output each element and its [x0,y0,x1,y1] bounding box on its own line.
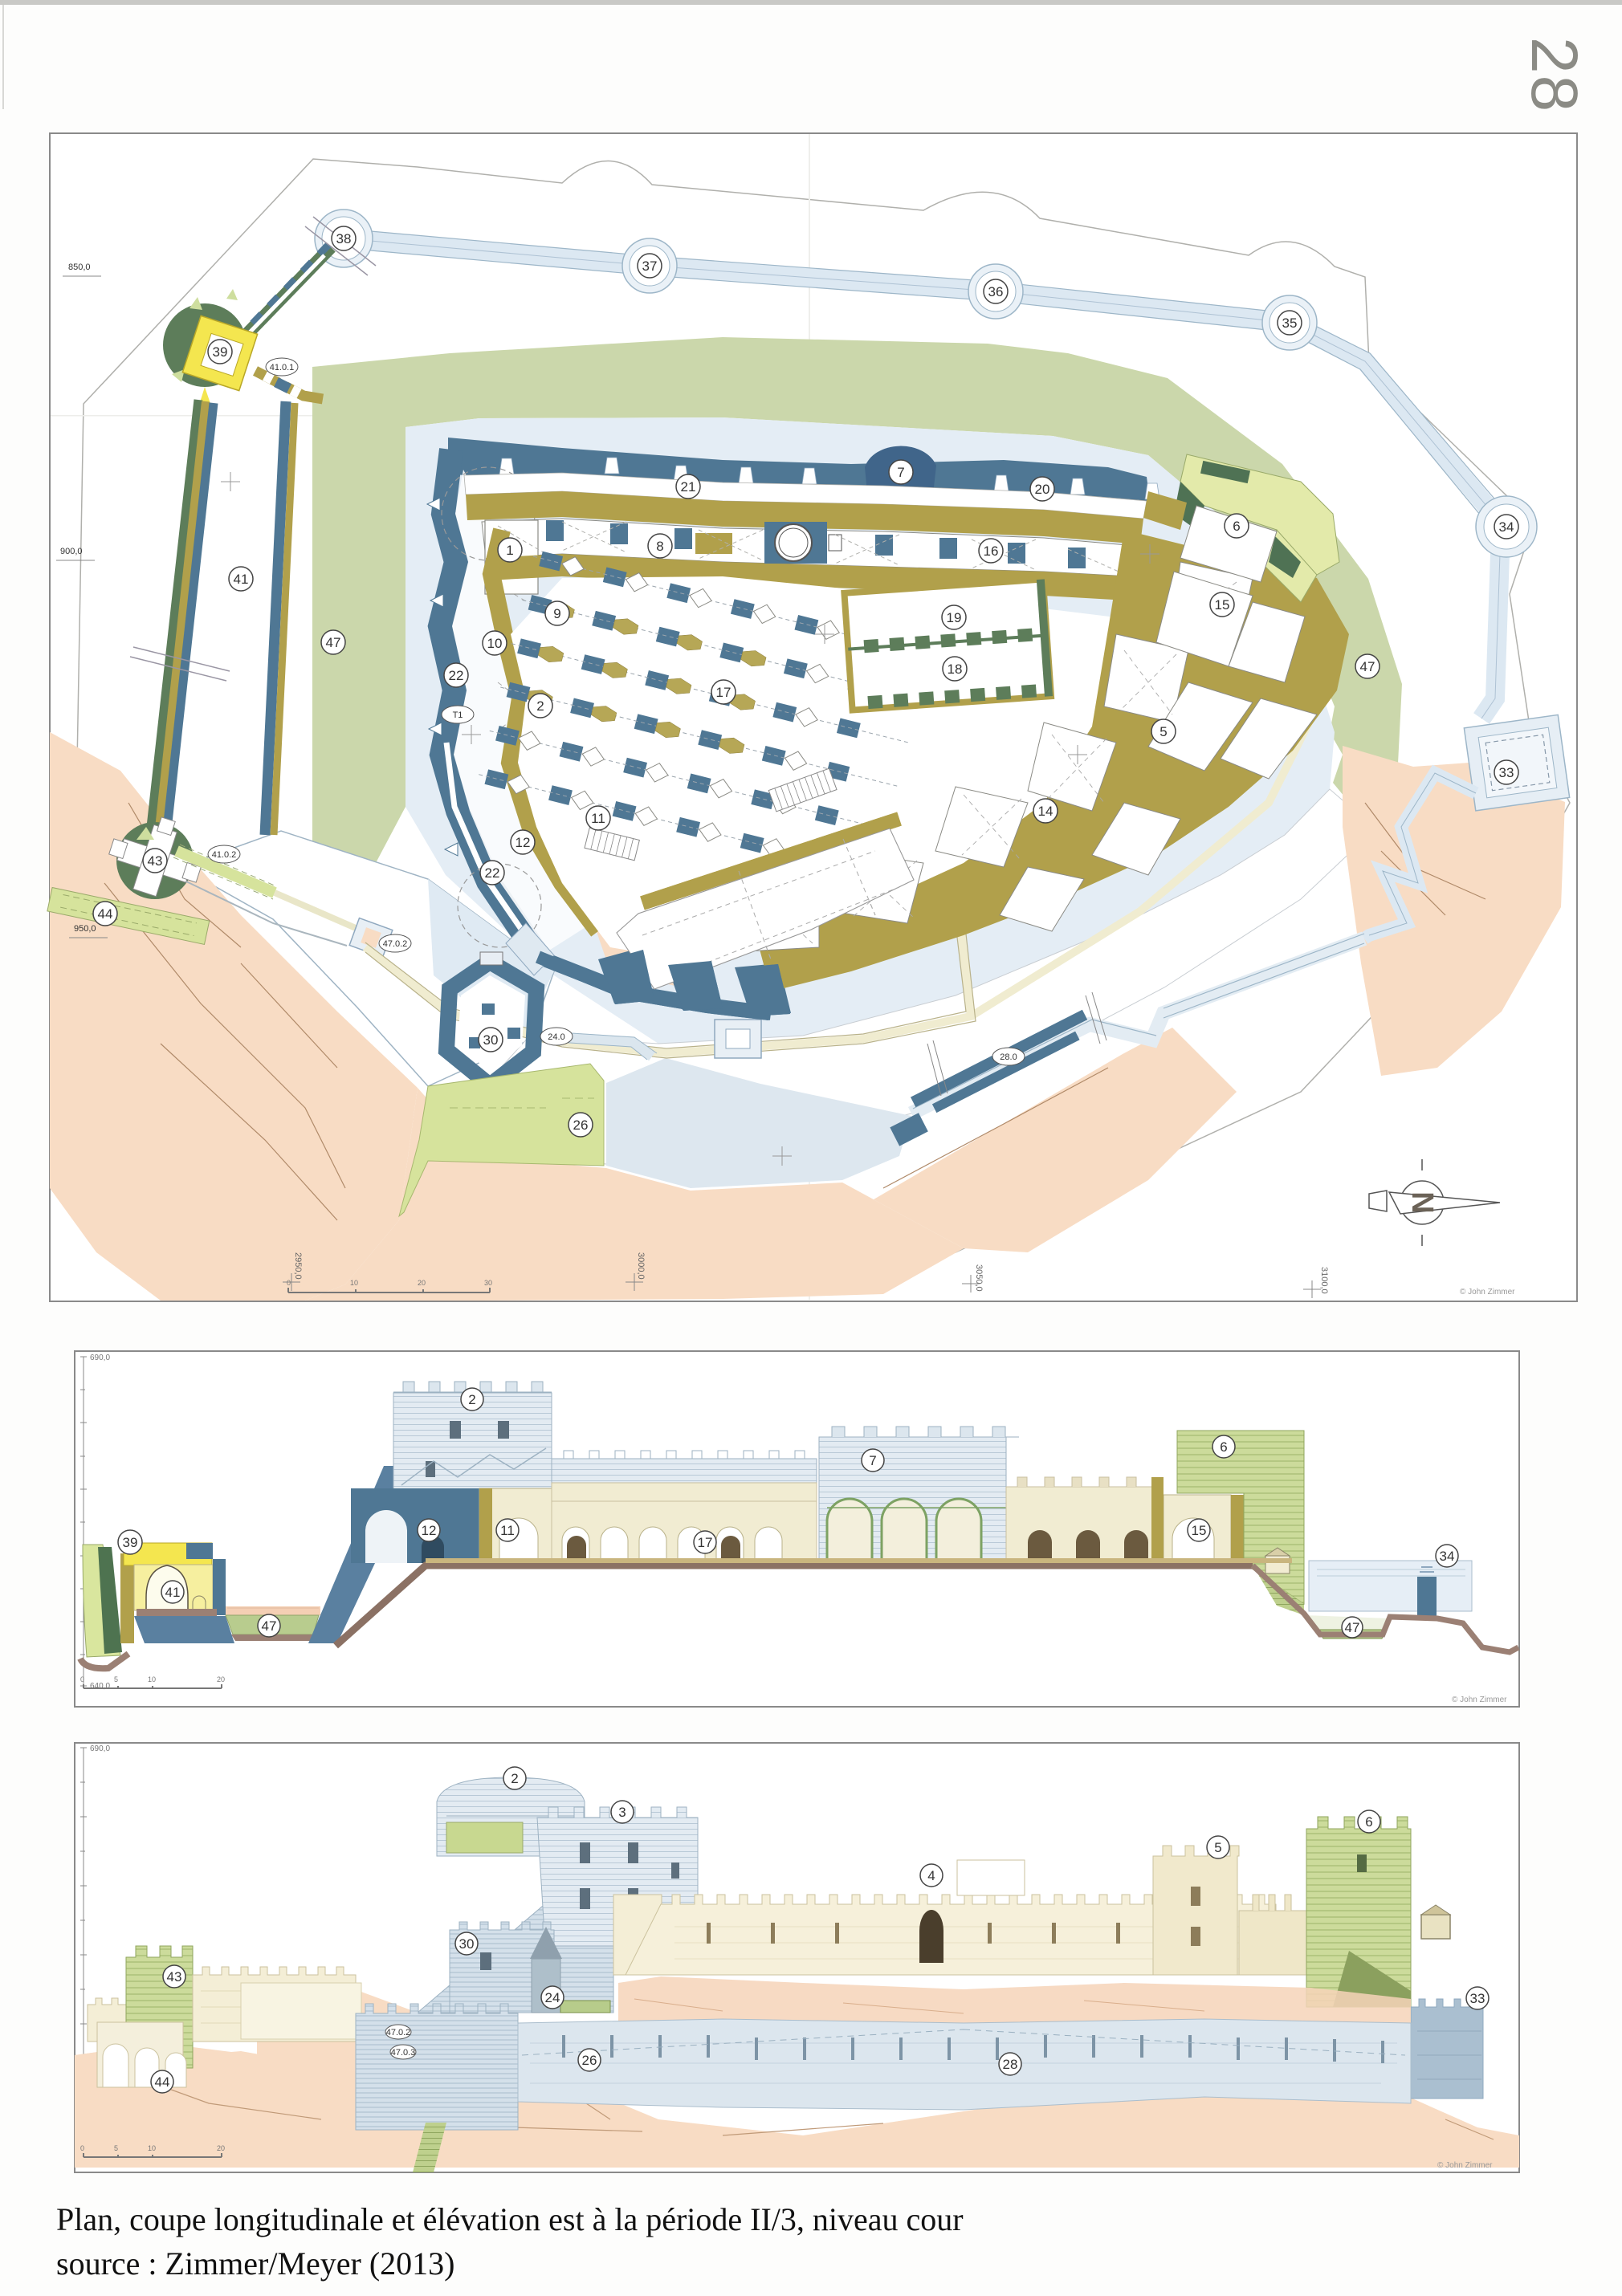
svg-text:47: 47 [1360,659,1375,674]
svg-text:38: 38 [336,231,352,246]
svg-text:16: 16 [984,543,999,559]
svg-text:15: 15 [1215,597,1230,613]
svg-text:Plan, coupe longitudinale et é: Plan, coupe longitudinale et élévation e… [56,2201,964,2237]
svg-text:41: 41 [234,572,249,587]
svg-text:44: 44 [98,906,113,922]
svg-text:5: 5 [114,1675,118,1683]
svg-text:640,0: 640,0 [90,1682,110,1691]
svg-text:47: 47 [262,1618,277,1634]
svg-text:41: 41 [165,1585,181,1600]
svg-text:1: 1 [506,543,513,558]
svg-text:28.0: 28.0 [1000,1052,1017,1062]
svg-text:source : Zimmer/Meyer (2013): source : Zimmer/Meyer (2013) [56,2245,455,2282]
svg-text:18: 18 [948,662,963,677]
svg-text:24: 24 [545,1990,560,2005]
svg-text:47.0.3: 47.0.3 [391,2048,416,2058]
svg-text:10: 10 [148,2144,156,2152]
svg-text:19: 19 [947,610,962,625]
svg-text:22: 22 [449,668,464,683]
svg-text:43: 43 [148,853,163,869]
svg-text:2950,0: 2950,0 [293,1252,303,1280]
svg-text:39: 39 [213,344,228,360]
svg-text:0: 0 [287,1279,291,1287]
svg-text:20: 20 [1035,482,1050,497]
svg-text:10: 10 [148,1675,156,1683]
svg-text:3000,0: 3000,0 [636,1252,646,1280]
svg-text:20: 20 [418,1279,426,1287]
svg-text:43: 43 [167,1969,182,1985]
svg-text:7: 7 [897,465,904,480]
svg-text:35: 35 [1282,315,1298,331]
svg-text:5: 5 [114,2144,118,2152]
svg-text:11: 11 [500,1523,515,1538]
svg-text:T1: T1 [453,710,463,720]
svg-text:2: 2 [511,1771,518,1786]
svg-text:24.0: 24.0 [548,1032,564,1042]
svg-text:47.0.2: 47.0.2 [386,2028,411,2037]
svg-text:0: 0 [80,2144,84,2152]
svg-text:3: 3 [618,1805,626,1820]
svg-text:22: 22 [485,865,500,881]
svg-text:44: 44 [155,2074,170,2090]
svg-text:20: 20 [217,1675,225,1683]
svg-text:12: 12 [422,1523,437,1538]
svg-text:900,0: 900,0 [60,547,83,556]
svg-text:5: 5 [1214,1840,1221,1855]
svg-text:33: 33 [1470,1991,1485,2006]
svg-text:12: 12 [516,835,531,850]
svg-text:36: 36 [988,284,1004,299]
svg-text:15: 15 [1192,1523,1207,1538]
svg-text:47: 47 [326,635,341,650]
svg-text:© John Zimmer: © John Zimmer [1437,2161,1493,2170]
svg-text:26: 26 [573,1117,589,1133]
svg-text:30: 30 [483,1032,499,1048]
svg-text:34: 34 [1440,1549,1455,1564]
svg-text:8: 8 [656,539,663,554]
svg-text:28: 28 [1518,37,1591,113]
svg-text:28: 28 [1003,2057,1018,2072]
svg-text:6: 6 [1365,1814,1372,1830]
svg-text:690,0: 690,0 [90,1744,110,1753]
svg-text:7: 7 [869,1453,876,1468]
svg-text:6: 6 [1220,1439,1227,1455]
svg-text:N: N [1405,1191,1439,1213]
svg-text:39: 39 [123,1535,138,1550]
svg-text:850,0: 850,0 [68,263,91,272]
svg-text:37: 37 [642,259,658,274]
svg-text:47.0.2: 47.0.2 [383,939,408,949]
svg-text:6: 6 [1233,519,1240,534]
svg-text:2: 2 [468,1392,475,1407]
svg-text:© John Zimmer: © John Zimmer [1452,1696,1507,1704]
svg-text:41.0.2: 41.0.2 [212,850,237,860]
svg-text:950,0: 950,0 [74,924,96,934]
svg-text:26: 26 [582,2053,597,2068]
svg-text:3100,0: 3100,0 [1319,1267,1329,1294]
svg-text:0: 0 [80,1675,84,1683]
svg-text:17: 17 [716,685,732,700]
svg-text:10: 10 [487,636,503,651]
svg-text:© John Zimmer: © John Zimmer [1460,1288,1515,1297]
svg-text:11: 11 [591,811,605,826]
svg-text:47: 47 [1345,1620,1360,1635]
svg-text:690,0: 690,0 [90,1354,110,1362]
svg-text:17: 17 [698,1535,713,1550]
svg-text:30: 30 [459,1936,475,1952]
svg-text:21: 21 [681,479,696,495]
svg-text:20: 20 [217,2144,225,2152]
svg-text:14: 14 [1038,804,1053,819]
svg-text:9: 9 [553,606,560,621]
svg-text:4: 4 [927,1868,935,1883]
svg-text:34: 34 [1499,519,1514,535]
svg-text:33: 33 [1499,765,1514,780]
svg-text:5: 5 [1159,724,1167,739]
svg-text:3050,0: 3050,0 [974,1264,984,1292]
svg-text:10: 10 [350,1279,358,1287]
svg-text:41.0.1: 41.0.1 [270,363,295,372]
svg-text:30: 30 [484,1279,492,1287]
svg-text:2: 2 [536,698,544,714]
